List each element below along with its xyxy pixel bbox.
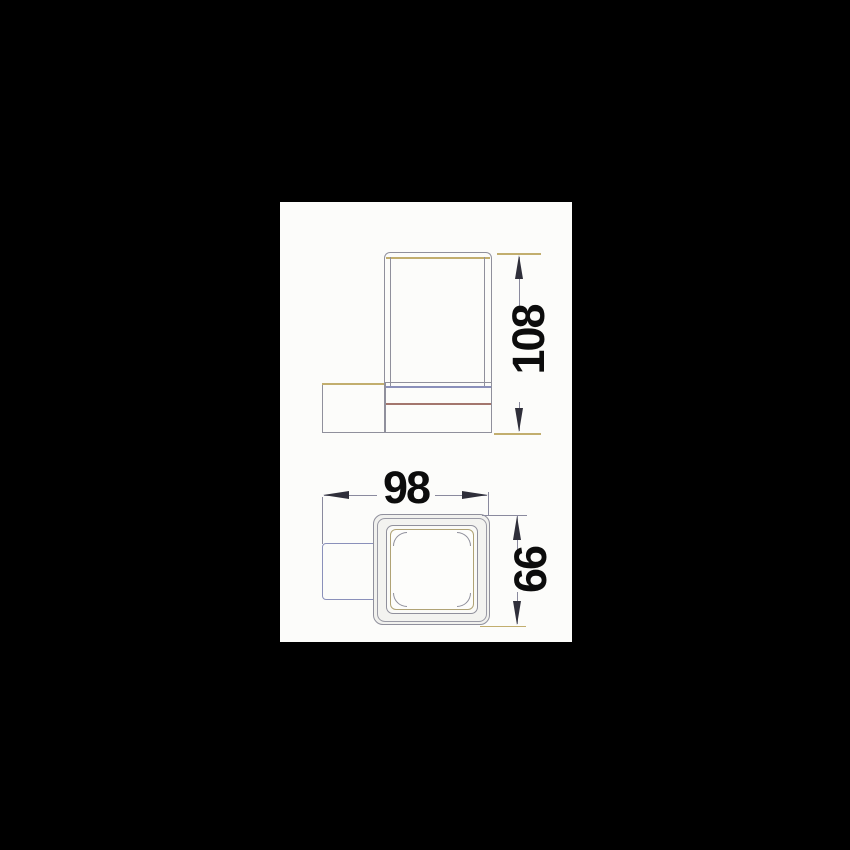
wall-bracket-top-edge: [322, 383, 385, 385]
cup-wall-left: [390, 257, 391, 386]
corner-arc-bottom-left: [393, 593, 407, 607]
cup-opening-square: [390, 529, 474, 610]
corner-arc-top-left: [393, 532, 407, 546]
cup-outline: [384, 252, 492, 386]
depth-extension-line-bottom: [480, 626, 526, 627]
wall-bracket-top: [322, 543, 377, 600]
width-extension-line-left: [322, 497, 323, 544]
depth-arrow-up-icon: [513, 516, 521, 540]
height-arrow-down-icon: [515, 408, 523, 432]
depth-arrow-down-icon: [513, 601, 521, 625]
wall-bracket-side: [322, 383, 385, 433]
depth-dimension-label: 66: [513, 544, 549, 596]
width-arrow-right-icon: [462, 491, 488, 499]
width-arrow-left-icon: [323, 491, 349, 499]
height-extension-line-bottom: [494, 433, 541, 435]
cup-rim-inner-line: [386, 257, 490, 259]
drawing-sheet: 108 98 66: [280, 202, 572, 642]
width-dimension-label: 98: [376, 470, 436, 506]
height-arrow-up-icon: [515, 255, 523, 279]
holder-outer-square: [373, 514, 490, 625]
holder-step-line: [386, 403, 491, 405]
screenshot-background: { "sheet": { "background": "#000000", "p…: [0, 0, 850, 850]
cup-wall-right: [484, 257, 485, 386]
height-dimension-label: 108: [511, 304, 547, 376]
corner-arc-bottom-right: [457, 593, 471, 607]
holder-body: [385, 382, 492, 433]
corner-arc-top-right: [457, 532, 471, 546]
holder-rim-line: [386, 386, 491, 388]
